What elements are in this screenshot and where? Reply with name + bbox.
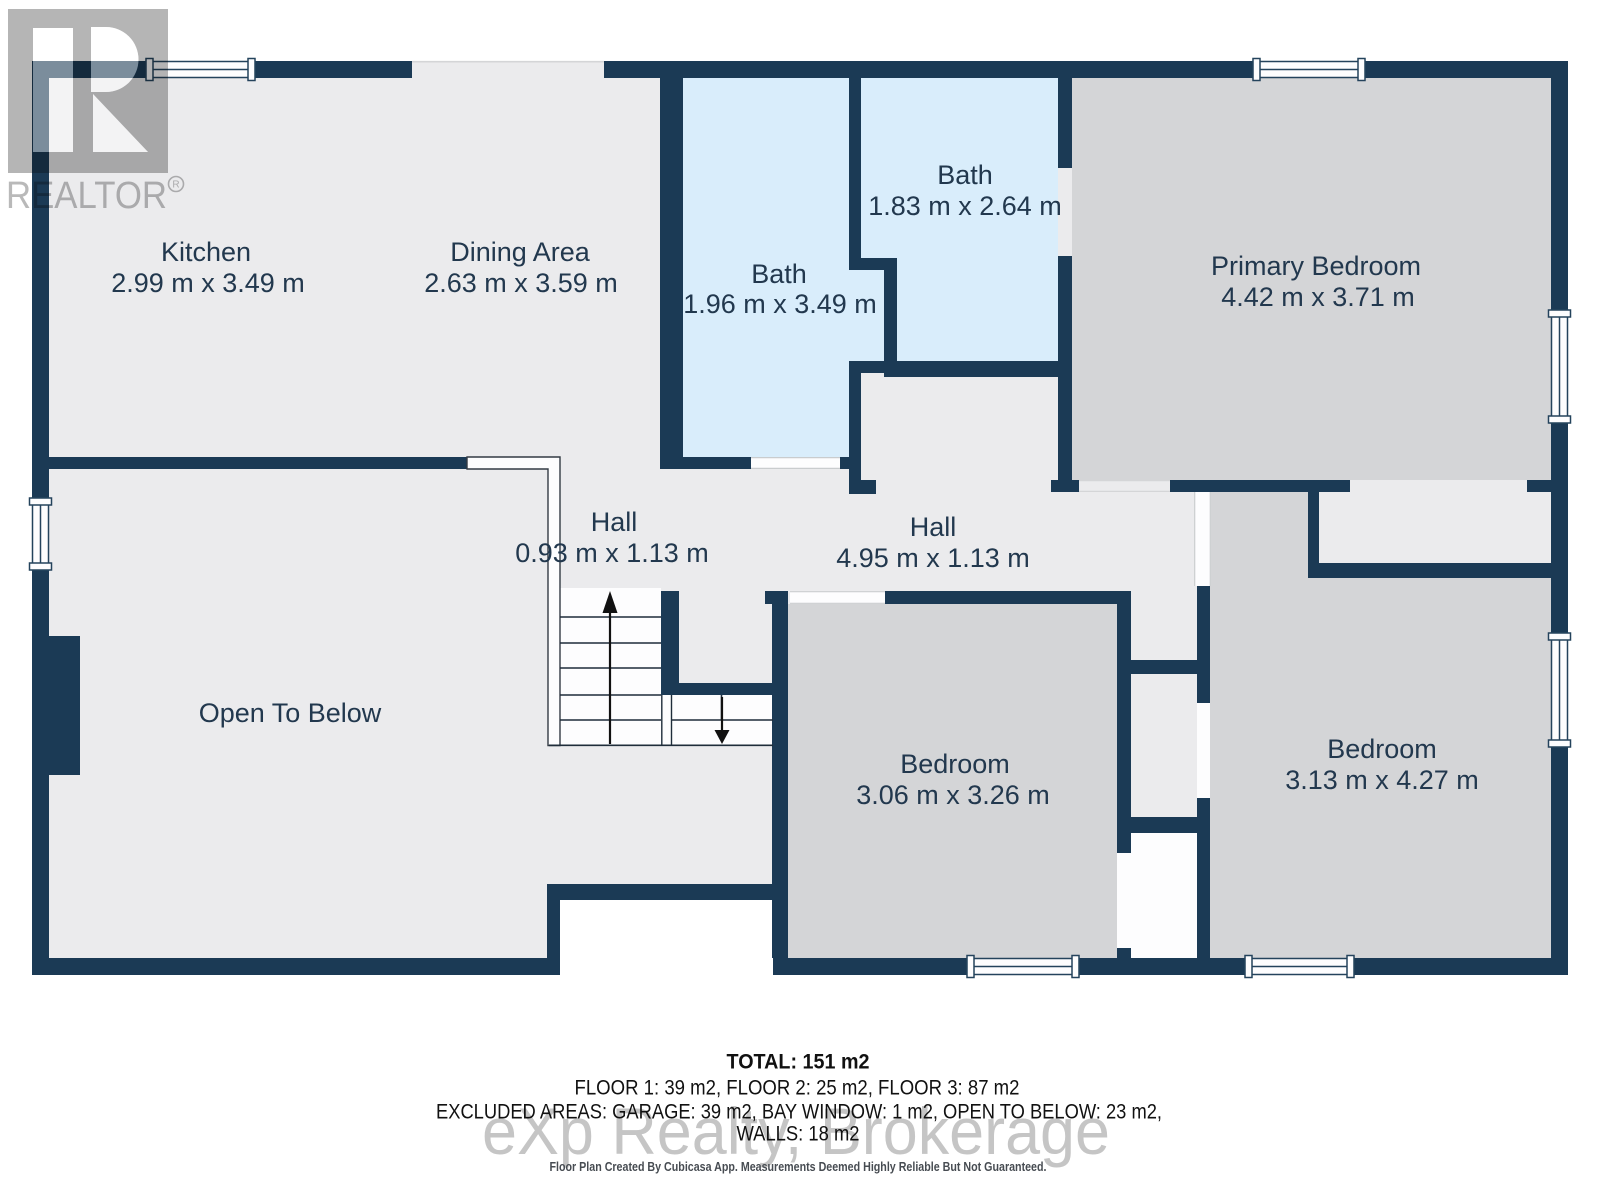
svg-text:TOTAL: 151 m2: TOTAL: 151 m2	[727, 1051, 870, 1074]
svg-text:2.99 m x 3.49 m: 2.99 m x 3.49 m	[111, 268, 305, 298]
svg-text:Dining Area: Dining Area	[450, 237, 591, 267]
svg-text:Floor Plan Created By Cubicasa: Floor Plan Created By Cubicasa App. Meas…	[550, 1160, 1047, 1174]
svg-text:EXCLUDED AREAS: GARAGE: 39 m2,: EXCLUDED AREAS: GARAGE: 39 m2, BAY WINDO…	[436, 1101, 1162, 1124]
svg-text:Primary Bedroom: Primary Bedroom	[1211, 251, 1421, 281]
svg-text:REALTOR: REALTOR	[6, 175, 167, 217]
svg-text:3.06 m x 3.26 m: 3.06 m x 3.26 m	[856, 780, 1050, 810]
svg-text:4.42 m x 3.71 m: 4.42 m x 3.71 m	[1221, 282, 1415, 312]
svg-text:Open To Below: Open To Below	[199, 698, 382, 728]
svg-text:WALLS: 18 m2: WALLS: 18 m2	[737, 1123, 860, 1146]
svg-text:1.96 m x 3.49 m: 1.96 m x 3.49 m	[683, 289, 877, 319]
svg-text:Hall: Hall	[910, 512, 957, 542]
svg-text:1.83 m x 2.64 m: 1.83 m x 2.64 m	[868, 191, 1062, 221]
svg-text:Bath: Bath	[937, 160, 993, 190]
svg-text:Bath: Bath	[751, 259, 807, 289]
svg-text:2.63 m x 3.59 m: 2.63 m x 3.59 m	[424, 268, 618, 298]
svg-text:FLOOR 1: 39 m2, FLOOR 2: 25 m2: FLOOR 1: 39 m2, FLOOR 2: 25 m2, FLOOR 3:…	[575, 1077, 1020, 1100]
svg-text:0.93 m x 1.13 m: 0.93 m x 1.13 m	[515, 538, 709, 568]
svg-text:4.95 m x 1.13 m: 4.95 m x 1.13 m	[836, 543, 1030, 573]
svg-text:Hall: Hall	[591, 507, 638, 537]
svg-text:Bedroom: Bedroom	[1327, 734, 1437, 764]
svg-text:R: R	[172, 180, 179, 191]
svg-text:3.13 m x 4.27 m: 3.13 m x 4.27 m	[1285, 765, 1479, 795]
svg-text:Bedroom: Bedroom	[900, 749, 1010, 779]
svg-text:Kitchen: Kitchen	[161, 237, 251, 267]
